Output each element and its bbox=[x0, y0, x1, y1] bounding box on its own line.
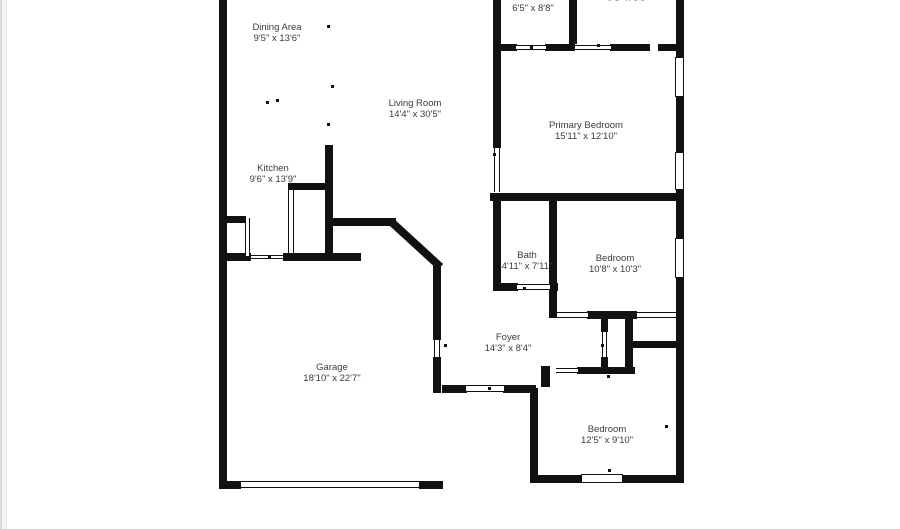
marker-dot bbox=[553, 243, 556, 246]
room-dimensions: 9'6" x 13'9" bbox=[250, 174, 297, 185]
room-name: Bath bbox=[502, 250, 553, 261]
room-dimensions: 18'10" x 22'7" bbox=[303, 373, 360, 384]
wall-segment bbox=[219, 216, 246, 223]
wall-segment bbox=[493, 283, 518, 291]
marker-dot bbox=[665, 425, 668, 428]
wall-segment bbox=[569, 0, 577, 44]
wall-segment bbox=[419, 481, 443, 489]
door-opening bbox=[251, 255, 283, 259]
room-label-kitchen: Kitchen 9'6" x 13'9" bbox=[250, 163, 297, 185]
marker-dot bbox=[276, 99, 279, 102]
wall-segment bbox=[493, 0, 501, 148]
marker-dot bbox=[331, 85, 334, 88]
wall-segment bbox=[676, 190, 684, 238]
marker-dot bbox=[588, 193, 591, 196]
window-marker bbox=[581, 474, 623, 483]
wall-segment bbox=[676, 0, 684, 57]
room-dimensions: 15'11" x 12'10" bbox=[549, 131, 623, 142]
marker-dot bbox=[601, 344, 604, 347]
marker-dot bbox=[523, 287, 526, 290]
room-dimensions: 4'11" x 7'11" bbox=[502, 261, 553, 272]
wall-segment bbox=[633, 341, 677, 348]
room-name: Primary Bedroom bbox=[549, 120, 623, 131]
marker-dot bbox=[530, 46, 533, 49]
room-name: Foyer bbox=[485, 332, 532, 343]
room-dimensions: 10'8" x 10'3" bbox=[589, 264, 641, 275]
wall-segment bbox=[501, 44, 517, 51]
room-dimensions: 6'5" x 8'8" bbox=[512, 3, 554, 14]
marker-dot bbox=[266, 101, 269, 104]
window-marker bbox=[675, 57, 684, 97]
room-name: Living Room bbox=[389, 98, 442, 109]
room-dimensions: 12'5" x 9'10" bbox=[581, 435, 633, 446]
wall-segment bbox=[623, 475, 684, 483]
room-label-primary: Primary Bedroom 15'11" x 12'10" bbox=[549, 120, 623, 142]
marker-dot bbox=[444, 344, 447, 347]
wall-segment bbox=[530, 388, 538, 483]
room-label-living: Living Room 14'4" x 30'5" bbox=[389, 98, 442, 120]
wall-segment bbox=[658, 44, 676, 51]
marker-dot bbox=[223, 123, 226, 126]
wall-segment bbox=[610, 44, 650, 51]
wall-segment bbox=[219, 0, 227, 489]
wall-segment bbox=[601, 319, 608, 332]
wall-segment bbox=[577, 367, 635, 374]
room-name: Bedroom bbox=[581, 424, 633, 435]
room-label-bedroom3: Bedroom 12'5" x 9'10" bbox=[581, 424, 633, 446]
wall-segment bbox=[490, 193, 677, 201]
wall-segment bbox=[503, 385, 536, 393]
wall-segment bbox=[676, 278, 684, 483]
floor-plan: Dining Area 9'5" x 13'6" Living Room 14'… bbox=[0, 0, 900, 529]
room-label-dining: Dining Area 9'5" x 13'6" bbox=[252, 22, 301, 44]
door-opening bbox=[241, 481, 419, 488]
door-opening bbox=[466, 385, 504, 392]
room-name: Garage bbox=[303, 362, 360, 373]
room-dimensions: 14'3" x 8'4" bbox=[485, 343, 532, 354]
marker-dot bbox=[327, 25, 330, 28]
wall-segment bbox=[541, 366, 550, 387]
marker-dot bbox=[268, 255, 271, 258]
marker-dot bbox=[223, 25, 226, 28]
room-label-foyer: Foyer 14'3" x 8'4" bbox=[485, 332, 532, 354]
wall-segment bbox=[442, 385, 467, 393]
marker-dot bbox=[614, 311, 617, 314]
door-opening bbox=[556, 368, 578, 373]
marker-dot bbox=[607, 375, 610, 378]
room-label-garage: Garage 18'10" x 22'7" bbox=[303, 362, 360, 384]
marker-dot bbox=[597, 44, 600, 47]
marker-dot bbox=[327, 123, 330, 126]
door-opening bbox=[557, 312, 588, 318]
wall-segment bbox=[625, 311, 633, 374]
room-name: Dining Area bbox=[252, 22, 301, 33]
marker-dot bbox=[493, 153, 496, 156]
room-label-top-right: 9'3" x 8'8" bbox=[607, 0, 649, 4]
door-opening bbox=[434, 340, 440, 357]
door-opening bbox=[288, 190, 294, 253]
room-name: Bedroom bbox=[589, 253, 641, 264]
door-opening bbox=[245, 218, 250, 256]
wall-segment bbox=[545, 44, 575, 51]
wall-segment bbox=[325, 145, 333, 261]
room-label-wic: W.I.C. 6'5" x 8'8" bbox=[512, 0, 554, 14]
room-dimensions: 9'5" x 13'6" bbox=[252, 33, 301, 44]
window-marker bbox=[675, 238, 684, 278]
wall-segment bbox=[283, 253, 361, 261]
room-label-bedroom2: Bedroom 10'8" x 10'3" bbox=[589, 253, 641, 275]
wall-segment bbox=[433, 262, 441, 340]
wall-segment-diagonal bbox=[388, 218, 444, 270]
wall-segment bbox=[676, 97, 684, 152]
room-dimensions: 14'4" x 30'5" bbox=[389, 109, 442, 120]
wall-segment bbox=[433, 357, 441, 393]
window-marker bbox=[675, 152, 684, 190]
wall-segment bbox=[219, 481, 241, 489]
photo-edge-strip bbox=[6, 0, 7, 529]
door-opening bbox=[637, 312, 676, 318]
marker-dot bbox=[608, 469, 611, 472]
door-opening bbox=[575, 45, 611, 50]
door-opening bbox=[517, 284, 550, 290]
marker-dot bbox=[488, 387, 491, 390]
room-dimensions: 9'3" x 8'8" bbox=[607, 0, 649, 4]
room-name: Kitchen bbox=[250, 163, 297, 174]
room-label-bath: Bath 4'11" x 7'11" bbox=[502, 250, 553, 272]
wall-segment bbox=[330, 218, 396, 226]
wall-segment bbox=[493, 201, 501, 283]
